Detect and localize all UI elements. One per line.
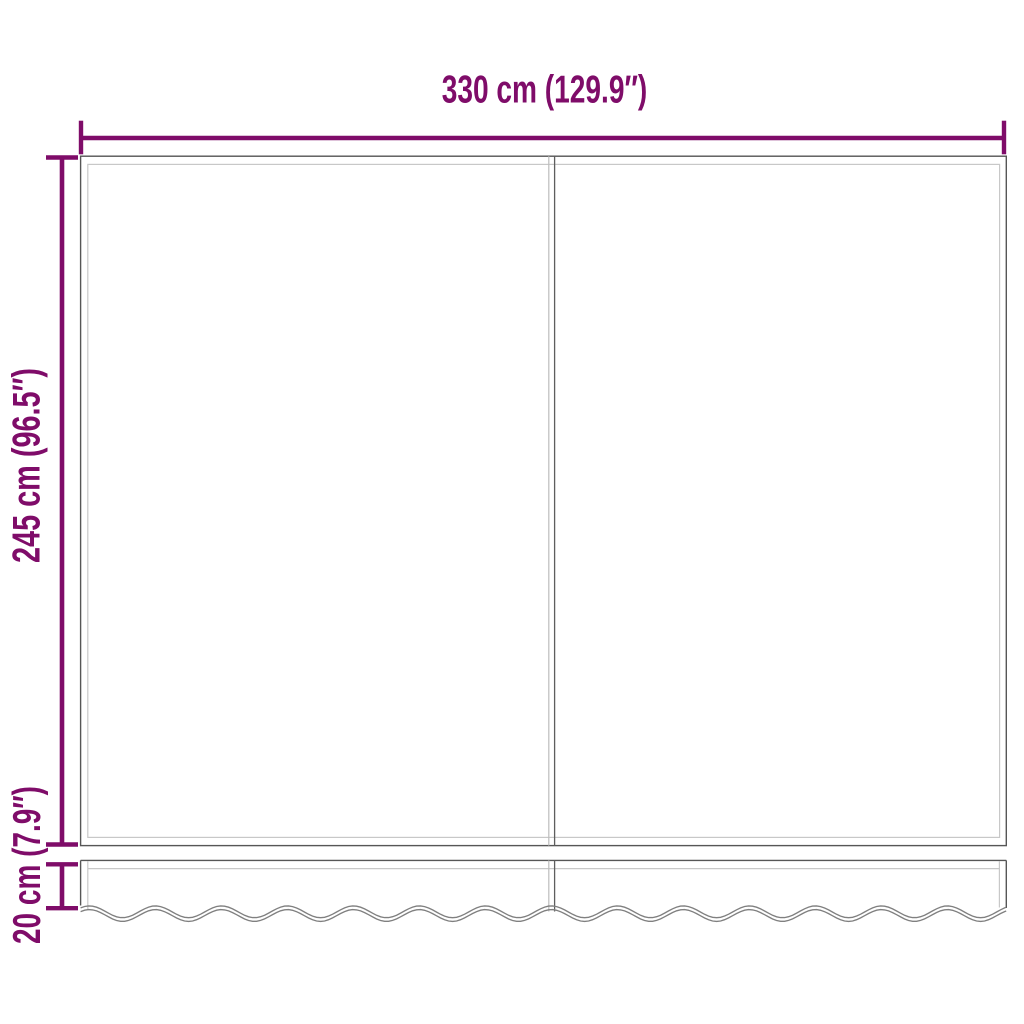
svg-text:245 cm (96.5″): 245 cm (96.5″) <box>6 368 49 563</box>
svg-text:330 cm (129.9″): 330 cm (129.9″) <box>442 69 648 112</box>
svg-text:20 cm (7.9″): 20 cm (7.9″) <box>6 786 49 944</box>
